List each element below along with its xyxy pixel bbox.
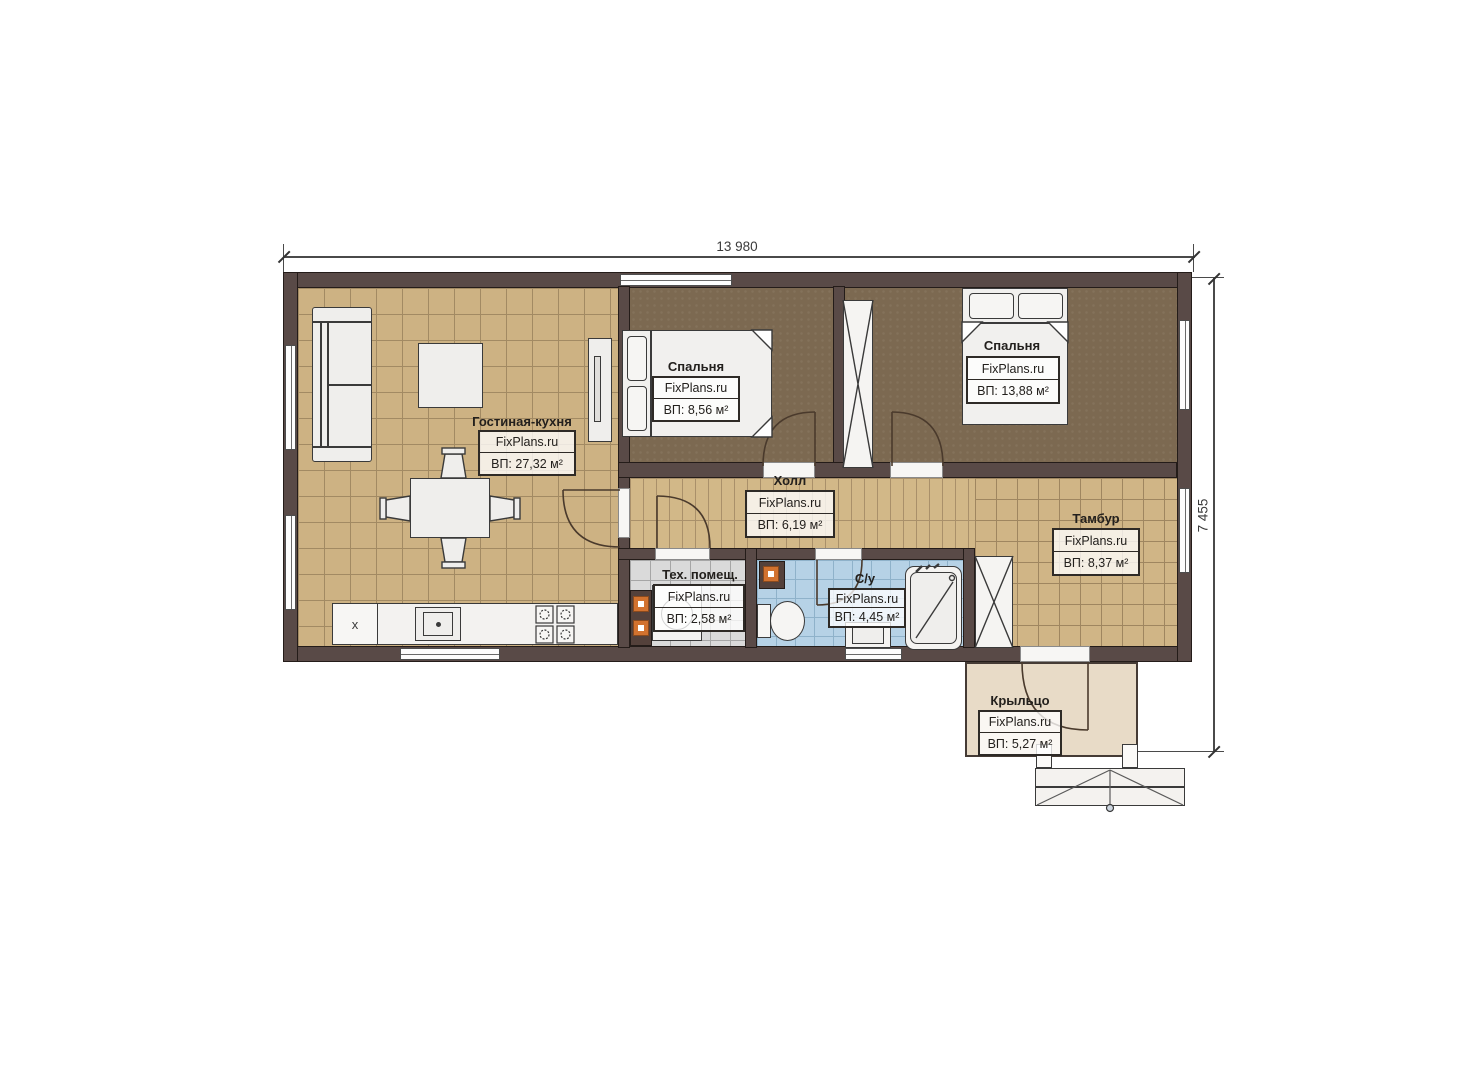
area-bedroom-2: ВП: 13,88 м² <box>968 380 1058 402</box>
room-title-tambour: Тамбур <box>1050 511 1142 526</box>
watermark-hall: FixPlans.ru <box>747 492 833 514</box>
sofa-seat-split <box>328 384 372 386</box>
dim-line-right <box>1213 278 1215 752</box>
bed-2-pillow-right <box>1018 293 1063 319</box>
sofa-back-line-1 <box>320 322 322 446</box>
area-wc: ВП: 4,45 м² <box>830 608 904 626</box>
room-title-porch: Крыльцо <box>975 693 1065 708</box>
bed-2-pillow-left <box>969 293 1014 319</box>
wall-tech-bath <box>745 548 757 648</box>
toilet-bowl <box>770 601 805 641</box>
dim-text-height: 7 455 <box>1196 481 1211 551</box>
dim-witness-right-top <box>1192 277 1224 278</box>
wall-exterior-top <box>283 272 1192 288</box>
coffee-table <box>418 343 483 408</box>
area-porch: ВП: 5,27 м² <box>980 733 1060 754</box>
room-box-living: FixPlans.ru ВП: 27,32 м² <box>478 430 576 476</box>
wardrobe-bedroom2 <box>843 300 873 468</box>
room-title-living: Гостиная-кухня <box>452 414 592 429</box>
tv <box>594 356 601 422</box>
window-kitchen-bottom <box>400 648 500 660</box>
closet-tambour <box>975 556 1013 648</box>
dim-text-width: 13 980 <box>697 239 777 254</box>
area-hall: ВП: 6,19 м² <box>747 514 833 536</box>
window-tambour-right <box>1179 488 1190 573</box>
room-title-wc: С/у <box>840 571 890 586</box>
tech-heater-1 <box>633 596 649 612</box>
room-title-bedroom-2: Спальня <box>962 338 1062 353</box>
room-box-tech: FixPlans.ru ВП: 2,58 м² <box>653 584 745 632</box>
window-bedroom1-top <box>620 274 732 286</box>
porch-step-1 <box>1035 768 1185 787</box>
bathroom-sink-basin <box>852 626 884 644</box>
room-title-tech: Тех. помещ. <box>650 567 750 582</box>
room-box-bedroom-1: FixPlans.ru ВП: 8,56 м² <box>652 376 740 422</box>
watermark-bedroom-2: FixPlans.ru <box>968 358 1058 380</box>
kitchen-sink-drain <box>436 622 441 627</box>
room-box-wc: FixPlans.ru ВП: 4,45 м² <box>828 588 906 628</box>
area-tech: ВП: 2,58 м² <box>655 608 743 630</box>
area-tambour: ВП: 8,37 м² <box>1054 552 1138 574</box>
fridge: x <box>332 603 378 645</box>
floor-plan: x <box>0 0 1473 1080</box>
door-opening-bath <box>815 548 862 560</box>
room-box-porch: FixPlans.ru ВП: 5,27 м² <box>978 710 1062 756</box>
area-bedroom-1: ВП: 8,56 м² <box>654 399 738 420</box>
bath-heater <box>763 566 779 582</box>
sofa-armrest-bottom <box>312 446 372 448</box>
watermark-living: FixPlans.ru <box>480 432 574 453</box>
window-living-left-2 <box>285 515 296 610</box>
wall-bath-tambour <box>963 548 975 648</box>
door-opening-entrance <box>1020 646 1090 662</box>
watermark-tech: FixPlans.ru <box>655 586 743 608</box>
toilet-tank <box>757 604 771 638</box>
door-opening-tech <box>655 548 710 560</box>
watermark-wc: FixPlans.ru <box>830 590 904 608</box>
room-box-hall: FixPlans.ru ВП: 6,19 м² <box>745 490 835 538</box>
porch-step-2 <box>1035 787 1185 806</box>
watermark-porch: FixPlans.ru <box>980 712 1060 733</box>
window-living-left-1 <box>285 345 296 450</box>
area-living: ВП: 27,32 м² <box>480 453 574 474</box>
room-title-hall: Холл <box>745 473 835 488</box>
window-bath-bottom <box>845 648 902 660</box>
tech-heater-2 <box>633 620 649 636</box>
bed-1-pillow-top <box>627 336 647 381</box>
door-opening-bedroom2 <box>890 462 943 478</box>
window-bedroom2-right <box>1179 320 1190 410</box>
watermark-bedroom-1: FixPlans.ru <box>654 378 738 399</box>
fridge-x-label: x <box>352 617 359 632</box>
door-opening-living-hall <box>618 488 630 538</box>
watermark-tambour: FixPlans.ru <box>1054 530 1138 552</box>
room-title-bedroom-1: Спальня <box>646 359 746 374</box>
room-box-bedroom-2: FixPlans.ru ВП: 13,88 м² <box>966 356 1060 404</box>
bed-2-headboard-line <box>962 322 1068 324</box>
room-box-tambour: FixPlans.ru ВП: 8,37 м² <box>1052 528 1140 576</box>
dim-line-top <box>283 256 1195 258</box>
bathtub-inner <box>910 572 957 644</box>
porch-post-right <box>1122 744 1138 768</box>
dining-table <box>410 478 490 538</box>
bed-1-pillow-bottom <box>627 386 647 431</box>
